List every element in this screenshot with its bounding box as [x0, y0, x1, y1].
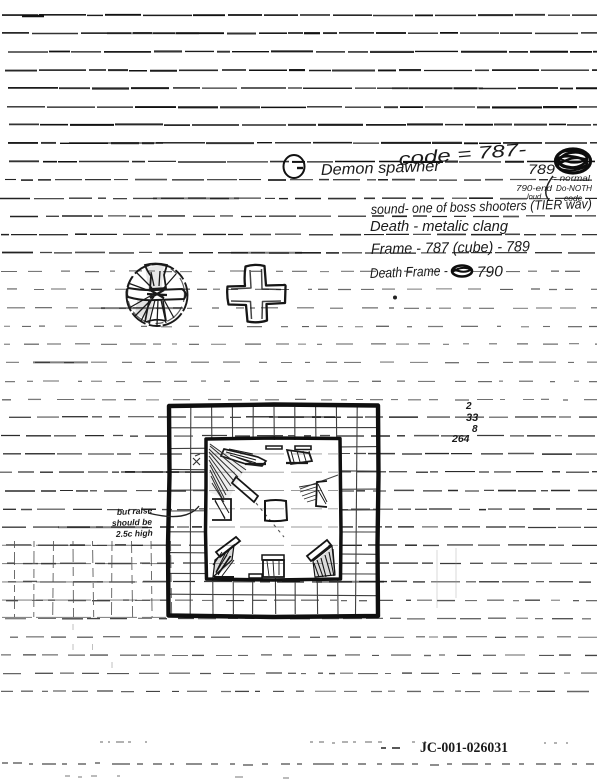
svg-text:Death - metalic clang: Death - metalic clang	[370, 218, 509, 235]
svg-text:JC-001-026031: JC-001-026031	[420, 740, 508, 756]
svg-text:2: 2	[465, 401, 472, 412]
svg-text:Death Frame -: Death Frame -	[370, 262, 449, 281]
svg-text:264: 264	[451, 433, 470, 445]
svg-text:should be: should be	[112, 517, 153, 528]
svg-text:Frame - 787 (cube) - 789: Frame - 787 (cube) - 789	[371, 238, 531, 258]
svg-text:but raise: but raise	[117, 505, 153, 517]
svg-text:2.5c high: 2.5c high	[115, 528, 153, 539]
svg-text:Do-NOTH: Do-NOTH	[556, 183, 593, 193]
svg-text:790: 790	[477, 263, 504, 281]
svg-text:33: 33	[466, 412, 478, 424]
svg-text:8: 8	[472, 424, 478, 435]
